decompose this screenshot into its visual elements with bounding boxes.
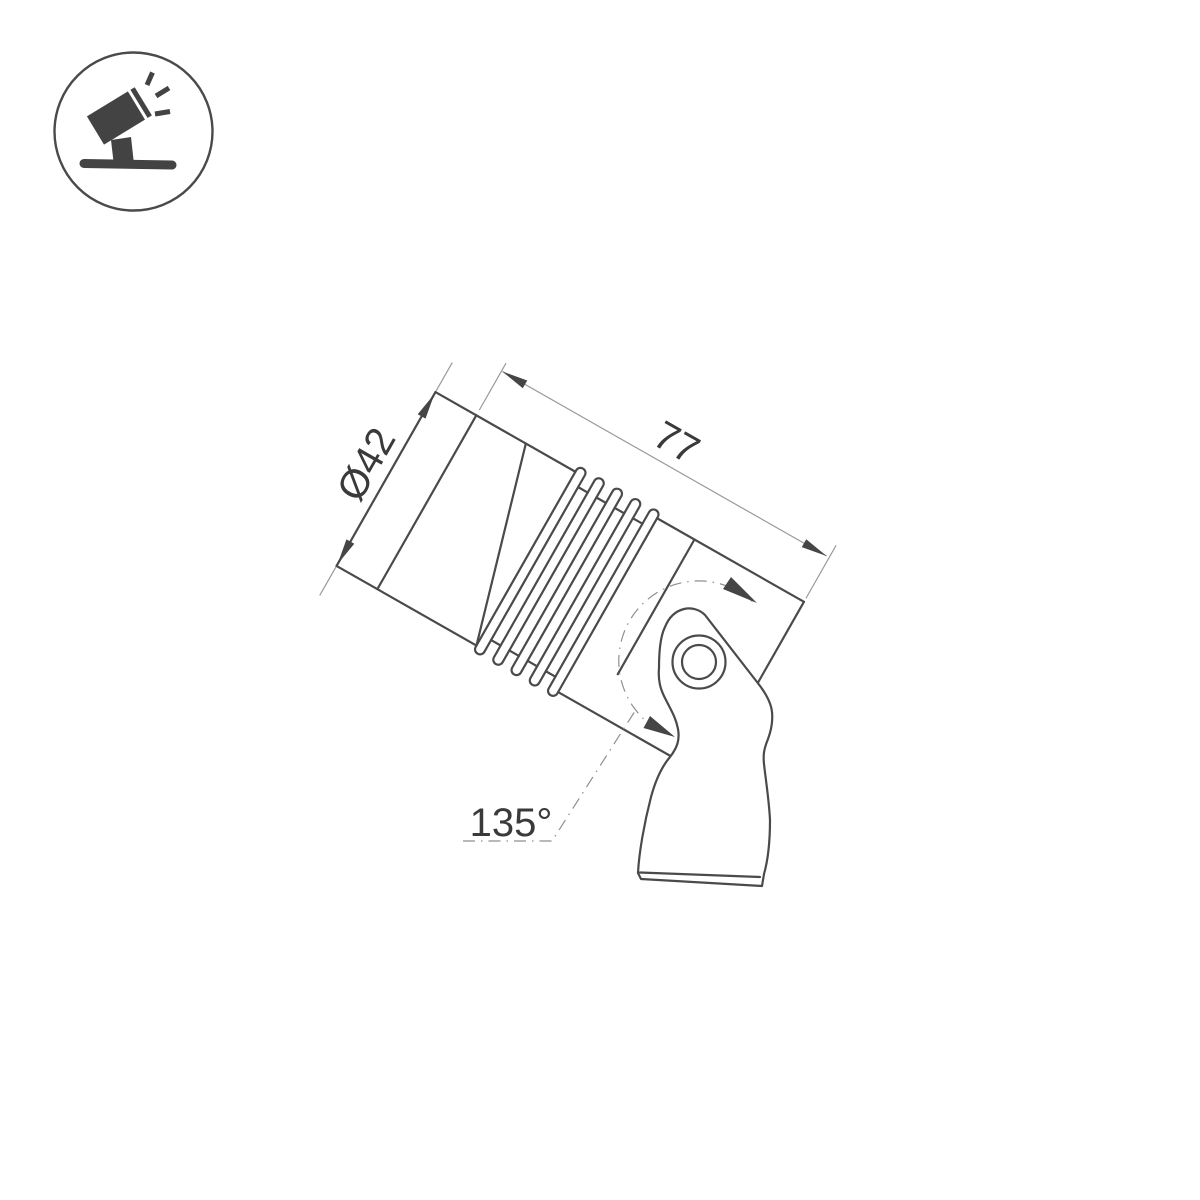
length-dimension-label: 77 bbox=[646, 413, 706, 473]
icon-ground-bar bbox=[84, 164, 172, 166]
icon-circle-border bbox=[55, 53, 213, 211]
angle-dimension-label: 135° bbox=[470, 801, 553, 845]
spotlight-icon bbox=[55, 53, 213, 211]
page: Ø42 77 135° bbox=[0, 0, 1200, 1200]
icon-light-rays bbox=[147, 73, 170, 115]
technical-drawing-canvas: Ø42 77 135° bbox=[0, 0, 1200, 1200]
length-arrow-left bbox=[500, 368, 527, 389]
length-arrow-right bbox=[802, 539, 829, 560]
